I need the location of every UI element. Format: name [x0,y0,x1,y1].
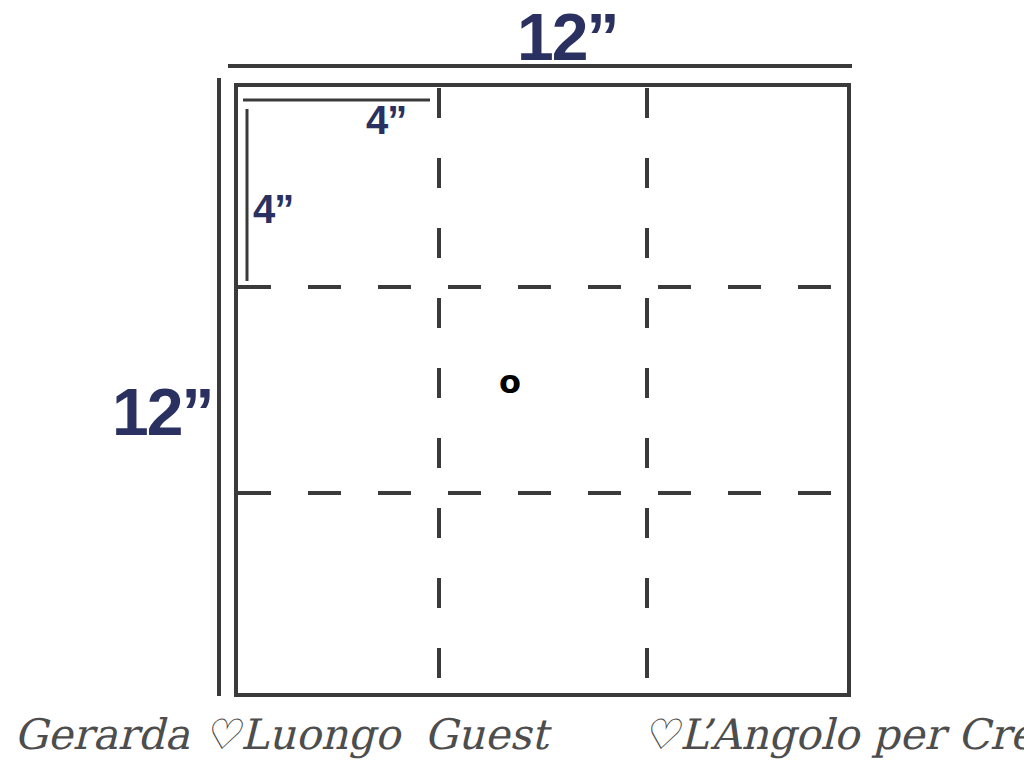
inner-height-label: 4” [253,189,293,229]
center-mark: o [499,366,521,398]
square-outline [236,85,849,695]
signature-left: Gerarda ♡Luongo [14,710,400,760]
signature-guest: Guest [424,710,548,760]
quilt-measurement-diagram: 12” 12” 4” 4” o Gerarda ♡Luongo Guest ♡L… [0,0,1024,769]
top-width-label: 12” [517,4,617,70]
left-height-label: 12” [112,379,212,445]
inner-width-label: 4” [366,100,406,140]
signature-right: ♡L’Angolo per Creare [642,710,1024,760]
